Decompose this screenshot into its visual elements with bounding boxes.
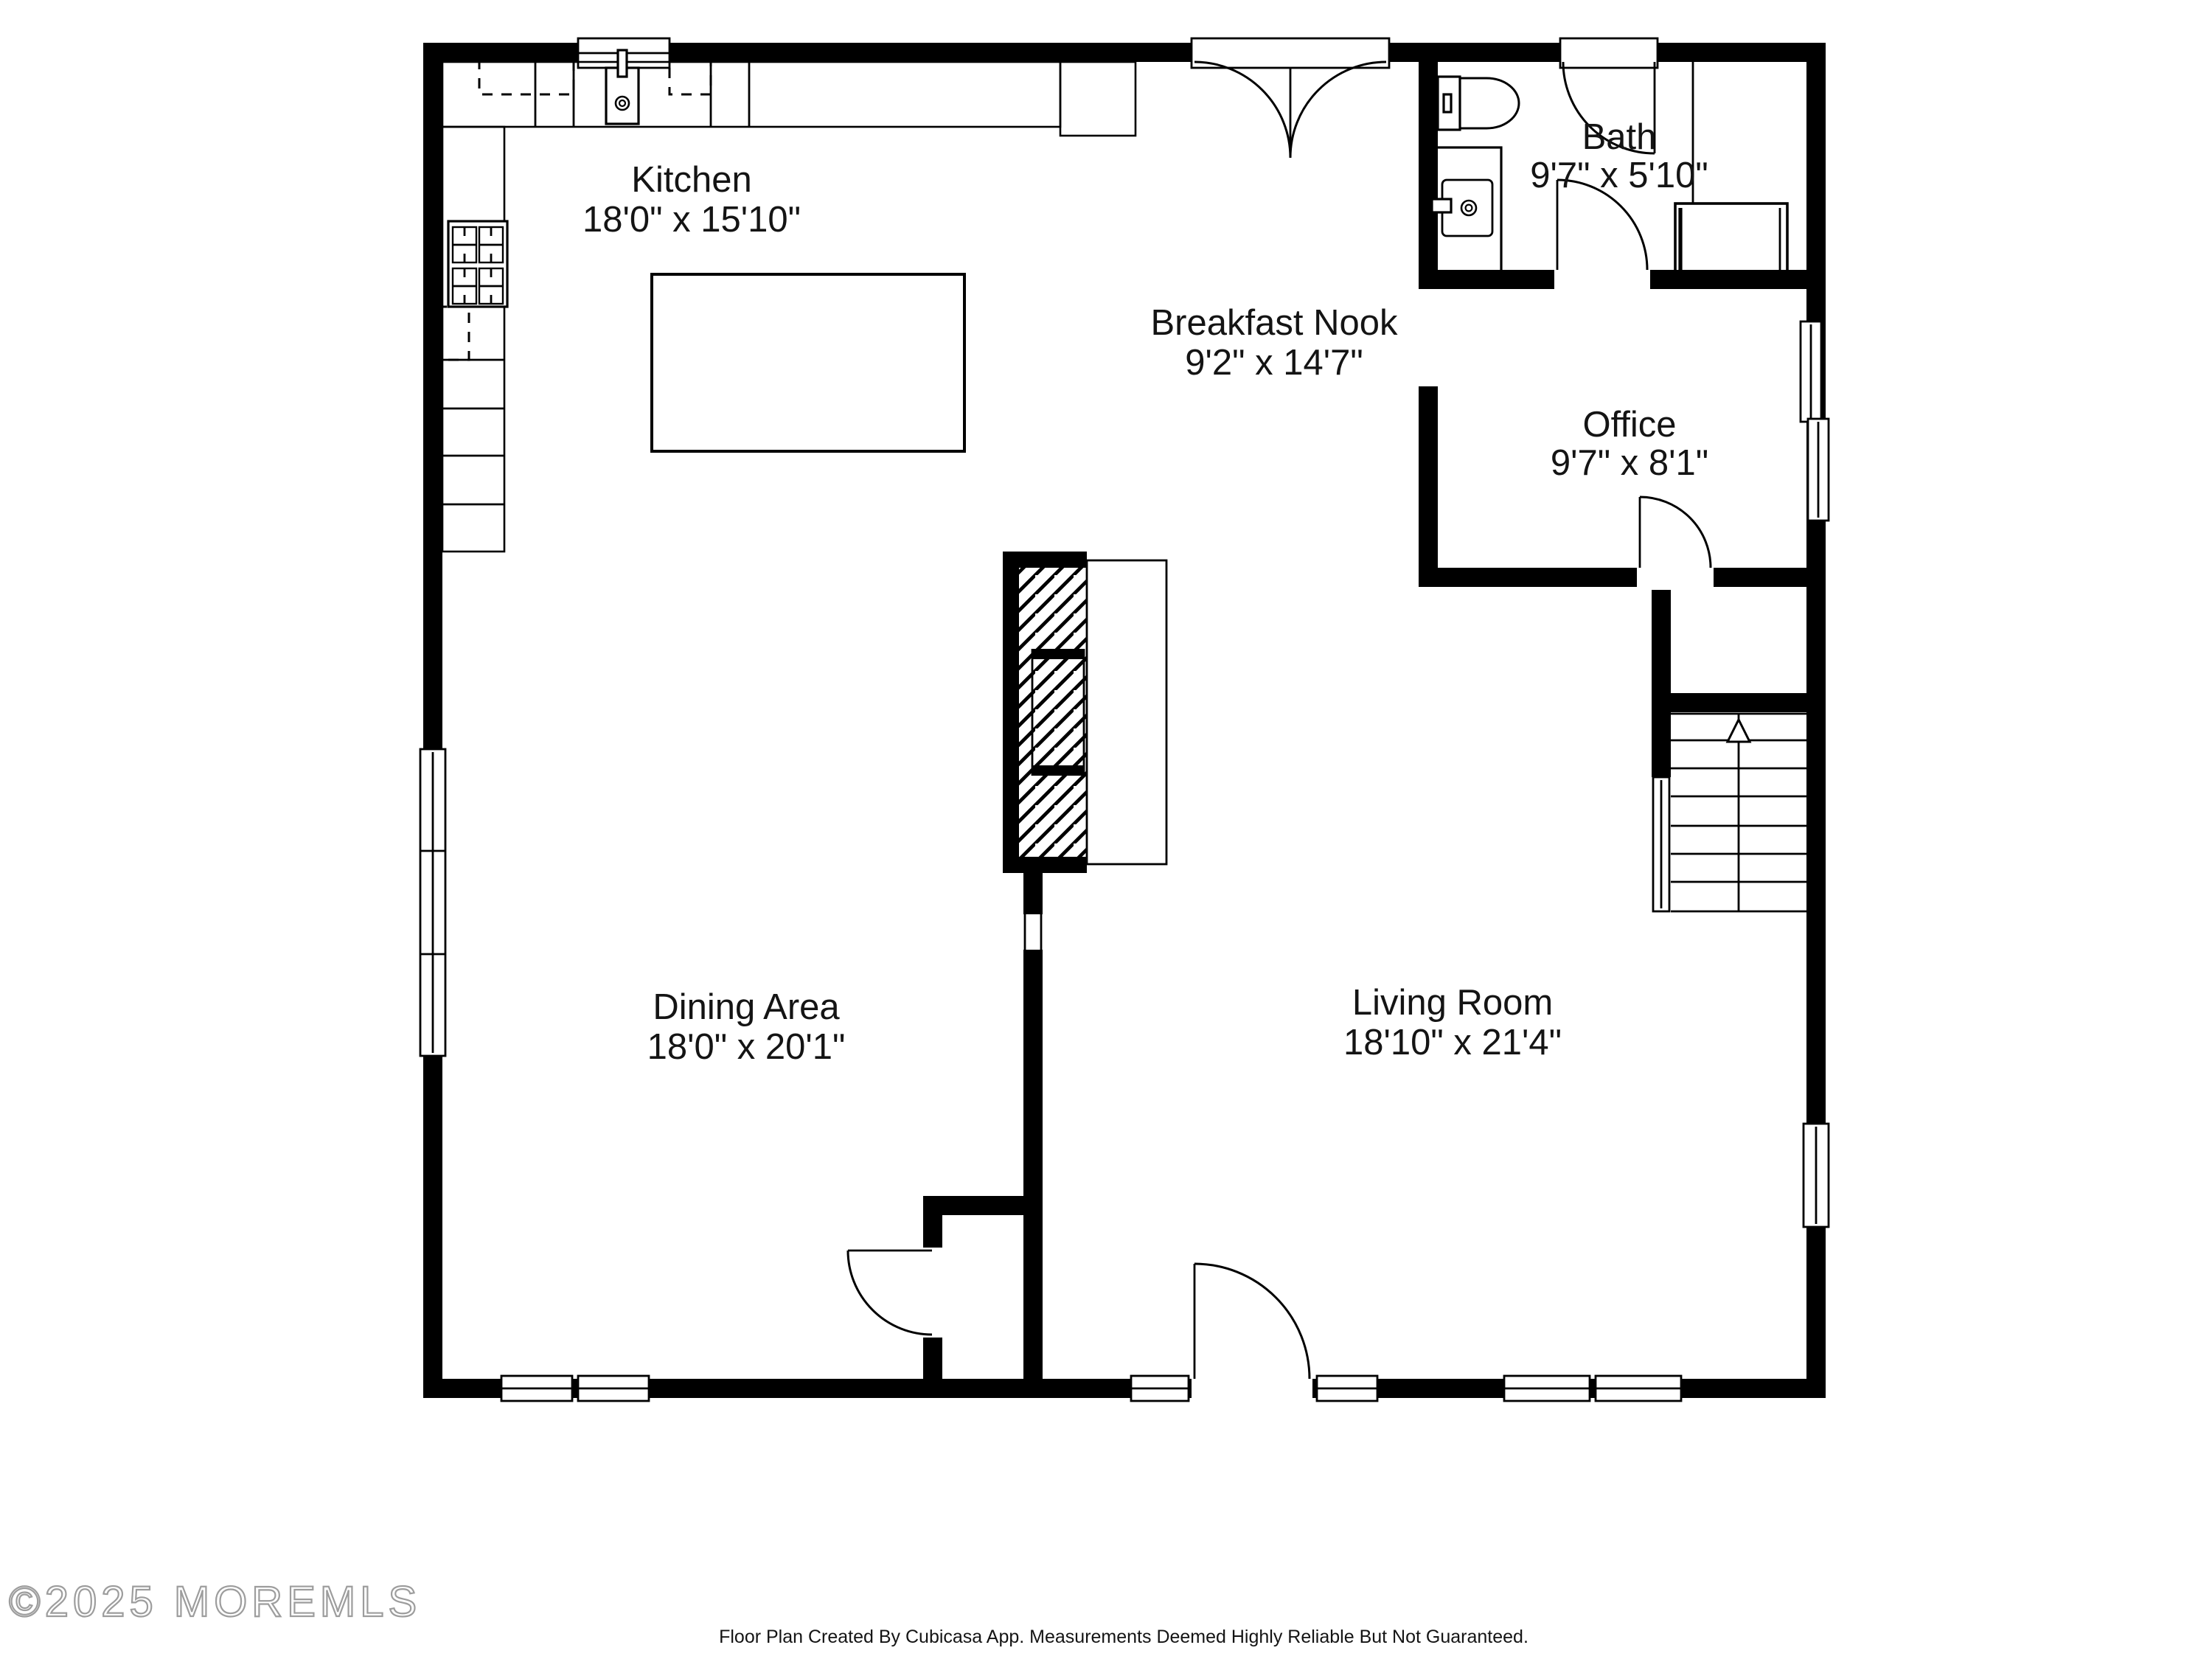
entry-window-right (1317, 1376, 1377, 1401)
room-dims-bath: 9'7" x 5'10" (1530, 156, 1708, 195)
room-label-office: Office (1582, 405, 1676, 445)
fireplace (1003, 552, 1166, 873)
vestibule-left-wall-upper (923, 1196, 942, 1251)
dining-left-window (420, 749, 445, 1056)
french-doors (1192, 38, 1389, 158)
room-dims-office: 9'7" x 8'1" (1551, 443, 1708, 483)
wall-left (423, 43, 442, 1398)
footer-disclaimer: Floor Plan Created By Cubicasa App. Meas… (719, 1627, 1528, 1647)
stove (448, 221, 507, 307)
room-label-living-room: Living Room (1352, 983, 1553, 1023)
toilet (1438, 77, 1519, 130)
room-label-bath: Bath (1582, 117, 1657, 157)
floor-plan-canvas: Kitchen 18'0" x 15'10" Breakfast Nook 9'… (0, 0, 2212, 1659)
room-dims-living-room: 18'10" x 21'4" (1343, 1023, 1562, 1062)
dining-bottom-window-2 (578, 1376, 649, 1401)
stairs-railing (1653, 777, 1669, 911)
vestibule-door (848, 1248, 945, 1338)
bath-shower (1675, 204, 1787, 280)
kitchen-counter-left (442, 127, 504, 552)
counter-appliance (1060, 62, 1135, 136)
room-dims-dining-area: 18'0" x 20'1" (647, 1027, 846, 1067)
room-dims-breakfast-nook: 9'2" x 14'7" (1185, 343, 1363, 383)
office-bottom-wall (1419, 568, 1806, 587)
room-labels: Kitchen 18'0" x 15'10" Breakfast Nook 9'… (582, 117, 1708, 1067)
entry-window-left (1131, 1376, 1189, 1401)
divider-wall-lower (1023, 950, 1043, 1379)
office-left-wall (1419, 386, 1438, 587)
stairs (1653, 714, 1806, 911)
kitchen-island (652, 274, 964, 451)
upper-cabinet-dashed-2 (669, 59, 711, 94)
bath-office-door (1554, 180, 1650, 292)
room-label-dining-area: Dining Area (653, 987, 840, 1027)
exterior-walls (423, 43, 1826, 1398)
stairs-up-arrow-icon (1728, 720, 1750, 742)
front-door (1192, 1264, 1312, 1401)
windows (420, 38, 1829, 1401)
fireplace-hatch (1009, 557, 1087, 867)
divider-wall-upper (1023, 873, 1043, 914)
living-bottom-window-1 (1504, 1376, 1590, 1401)
office-door (1637, 497, 1714, 590)
room-label-breakfast-nook: Breakfast Nook (1151, 303, 1398, 343)
upper-cabinet-dashed-1 (479, 59, 574, 94)
bath-left-wall (1419, 62, 1438, 289)
watermark: ©2025 MOREMLS (9, 1578, 421, 1626)
hearth (1087, 560, 1166, 864)
bath-vanity (1432, 147, 1501, 280)
floor-plan: Kitchen 18'0" x 15'10" Breakfast Nook 9'… (0, 0, 2212, 1659)
stairs-left-wall (1652, 587, 1671, 777)
living-right-window (1804, 1124, 1829, 1227)
dining-bottom-window-1 (501, 1376, 572, 1401)
living-bottom-window-2 (1596, 1376, 1681, 1401)
room-label-kitchen: Kitchen (631, 160, 751, 200)
vestibule-left-wall-lower (923, 1335, 942, 1379)
room-dims-kitchen: 18'0" x 15'10" (582, 200, 801, 240)
stairs-closet-bottom-wall (1652, 693, 1806, 712)
kitchen-fixtures (437, 50, 1135, 552)
